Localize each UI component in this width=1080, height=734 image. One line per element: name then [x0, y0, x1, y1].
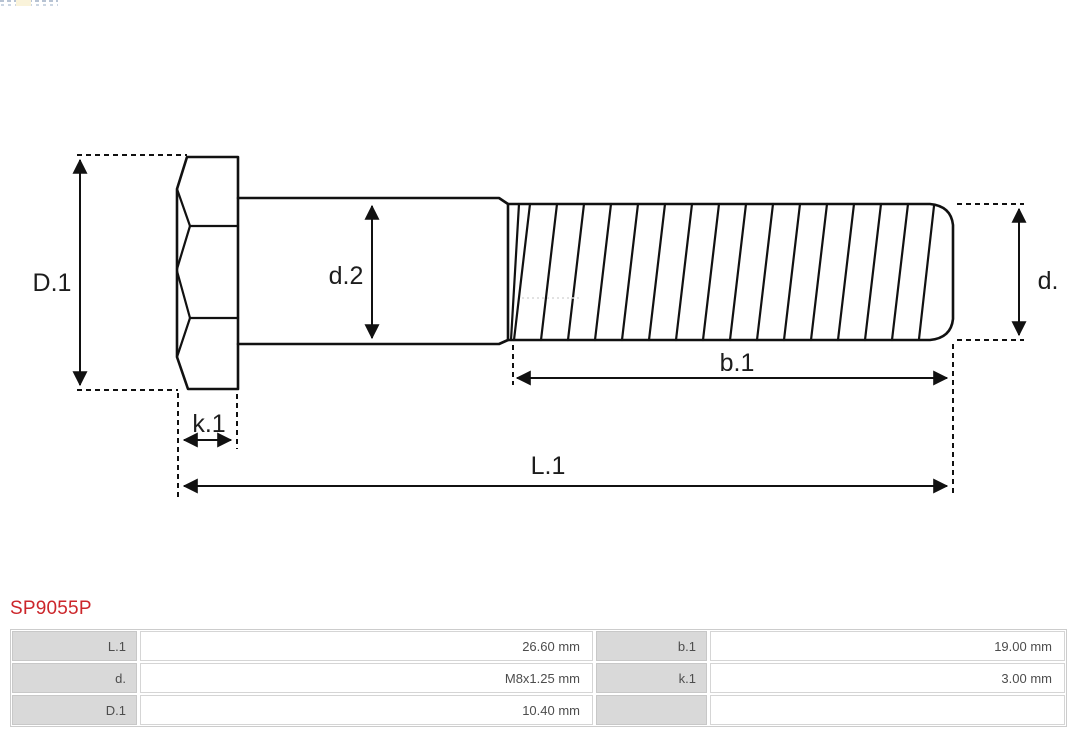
dim-label-shank-diameter: d.2 [329, 262, 364, 290]
dim-label-head-height: k.1 [192, 410, 225, 438]
dim-label-thread-length: b.1 [720, 349, 755, 377]
part-number: SP9055P [10, 598, 92, 620]
spec-value-L1: 26.60 mm [140, 631, 593, 661]
spec-value-b1: 19.00 mm [710, 631, 1065, 661]
bolt-dimension-diagram: D.1 d.2 d. b.1 k.1 L.1 [0, 0, 1080, 590]
spec-label-D1: D.1 [12, 695, 137, 725]
spec-value-d: M8x1.25 mm [140, 663, 593, 693]
spec-value-empty [710, 695, 1065, 725]
bolt-thread [508, 204, 953, 340]
dim-label-total-length: L.1 [531, 452, 566, 480]
dim-label-thread-diameter: d. [1038, 267, 1059, 295]
spec-label-empty [596, 695, 707, 725]
spec-label-b1: b.1 [596, 631, 707, 661]
dim-label-head-diameter: D.1 [33, 269, 72, 297]
spec-label-d: d. [12, 663, 137, 693]
dimension-extension-lines [77, 155, 1024, 497]
spec-value-D1: 10.40 mm [140, 695, 593, 725]
bolt-head [177, 157, 238, 389]
spec-table: L.1 26.60 mm b.1 19.00 mm d. M8x1.25 mm … [10, 629, 1067, 727]
spec-value-k1: 3.00 mm [710, 663, 1065, 693]
spec-label-L1: L.1 [12, 631, 137, 661]
spec-label-k1: k.1 [596, 663, 707, 693]
